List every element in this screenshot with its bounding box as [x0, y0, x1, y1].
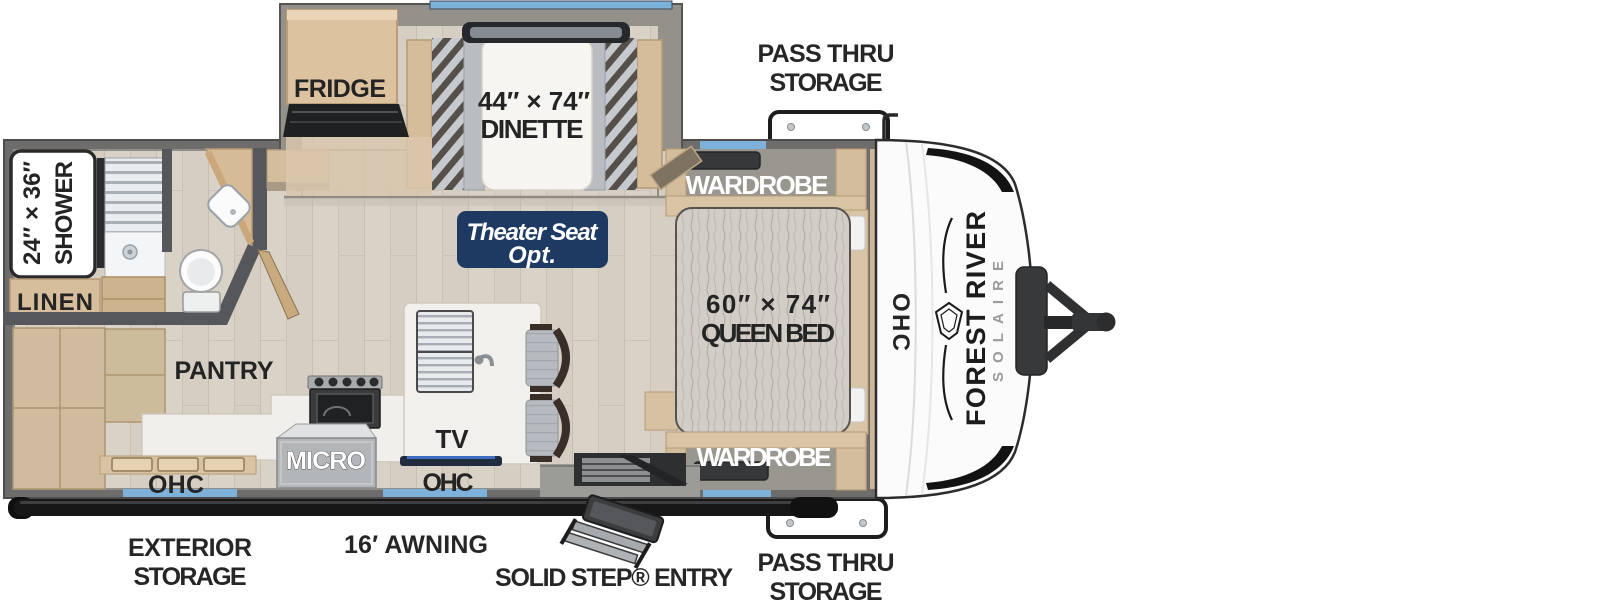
- svg-text:PASS THRU: PASS THRU: [758, 549, 895, 577]
- svg-text:SOLID STEP® ENTRY: SOLID STEP® ENTRY: [495, 564, 733, 592]
- svg-text:STORAGE: STORAGE: [134, 563, 247, 591]
- svg-text:STORAGE: STORAGE: [770, 578, 883, 606]
- svg-text:PANTRY: PANTRY: [175, 357, 274, 385]
- svg-text:QUEEN BED: QUEEN BED: [701, 318, 835, 348]
- svg-text:WARDROBE: WARDROBE: [686, 170, 829, 200]
- svg-text:TV: TV: [435, 424, 469, 454]
- svg-text:STORAGE: STORAGE: [770, 69, 883, 97]
- svg-text:OHC: OHC: [423, 469, 474, 497]
- svg-text:LINEN: LINEN: [17, 289, 93, 316]
- svg-text:16′ AWNING: 16′ AWNING: [344, 531, 488, 559]
- svg-text:FRIDGE: FRIDGE: [294, 75, 386, 103]
- svg-text:EXTERIOR: EXTERIOR: [128, 534, 252, 562]
- svg-text:Opt.: Opt.: [508, 242, 556, 269]
- svg-text:WARDROBE: WARDROBE: [697, 442, 832, 472]
- svg-text:MICRO: MICRO: [286, 447, 366, 475]
- svg-text:OHC: OHC: [887, 293, 914, 351]
- svg-text:SHOWER: SHOWER: [51, 161, 78, 265]
- svg-text:DINETTE: DINETTE: [481, 114, 584, 144]
- svg-text:44″ × 74″: 44″ × 74″: [478, 86, 590, 116]
- svg-text:SOLAIRE: SOLAIRE: [990, 254, 1007, 382]
- svg-text:PASS THRU: PASS THRU: [758, 40, 895, 68]
- svg-text:60″ × 74″: 60″ × 74″: [706, 289, 830, 319]
- svg-text:24″ × 36″: 24″ × 36″: [19, 161, 46, 266]
- svg-text:FOREST RIVER: FOREST RIVER: [961, 210, 991, 426]
- svg-text:OHC: OHC: [148, 471, 204, 499]
